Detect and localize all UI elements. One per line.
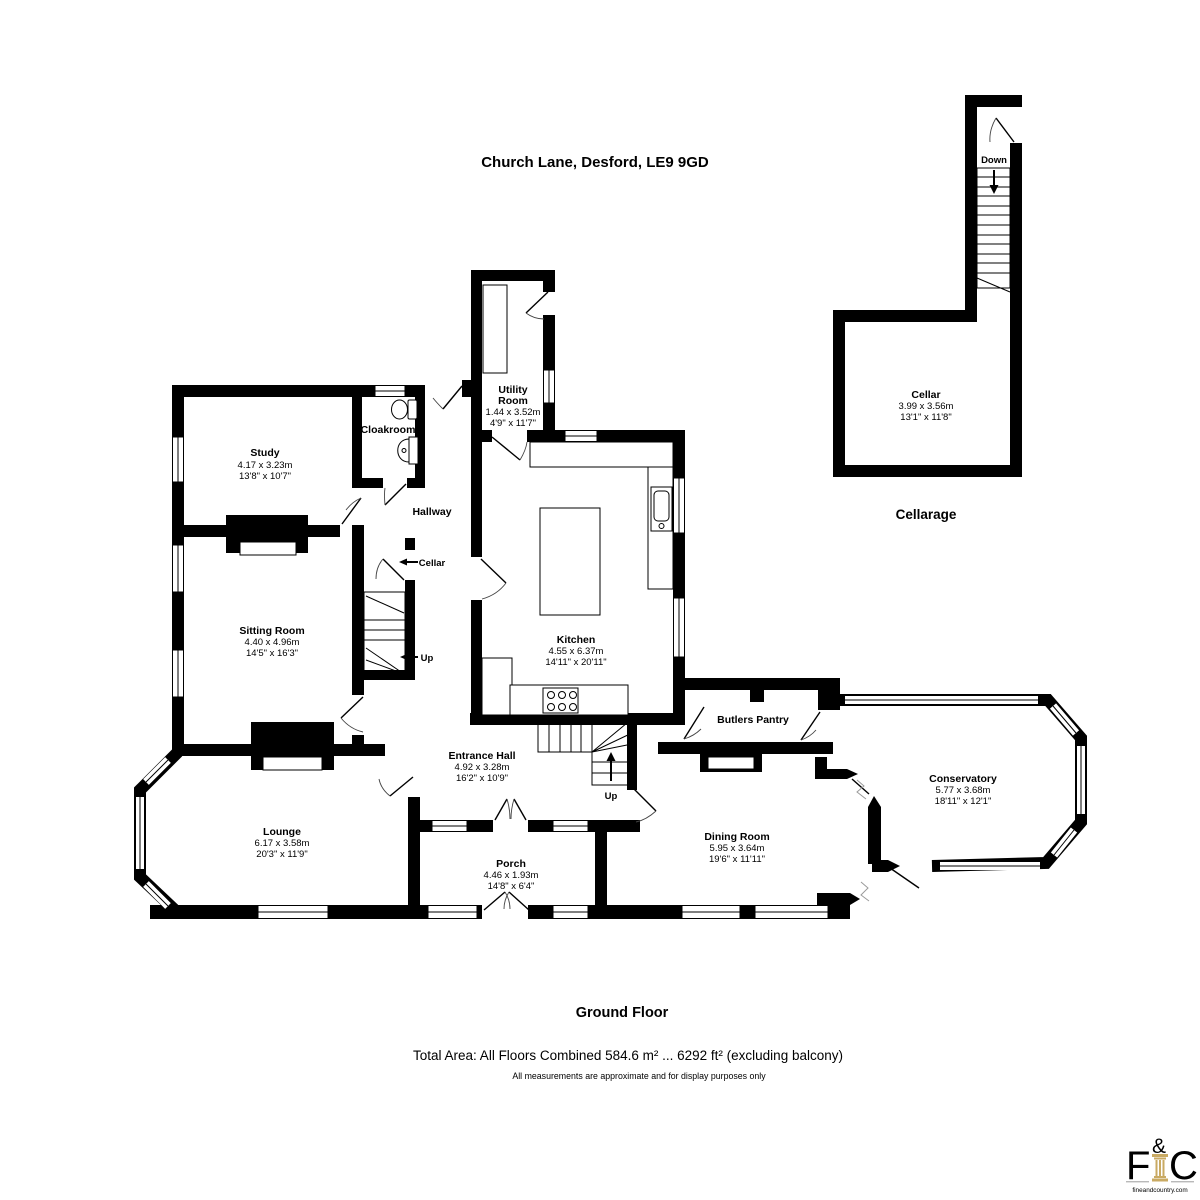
column-icon <box>1152 1154 1168 1182</box>
stairs-cellar <box>977 168 1010 292</box>
room-dim-metric: 4.46 x 1.93m <box>484 870 539 881</box>
door <box>433 386 462 409</box>
window <box>258 906 328 919</box>
left-arrow-icon <box>399 559 407 566</box>
room-label: Entrance Hall <box>448 750 515 762</box>
room-label: Lounge <box>263 826 301 838</box>
door <box>341 697 363 732</box>
logo-website: fineandcountry.com <box>1132 1187 1187 1194</box>
room-dim-imperial: 13'8" x 10'7" <box>239 471 291 482</box>
door <box>801 712 820 740</box>
window <box>674 478 685 533</box>
left-arrow-icon <box>400 654 408 661</box>
floor-label: Ground Floor <box>576 1005 669 1021</box>
sink-icon <box>651 487 672 531</box>
floorplan-page: Church Lane, Desford, LE9 9GD <box>0 0 1200 1200</box>
room-hallway: Hallway <box>412 506 451 518</box>
room-dim-imperial: 14'8" x 6'4" <box>488 881 535 892</box>
room-label: Cellar <box>911 389 940 401</box>
up-arrow-icon <box>607 752 616 761</box>
cellar-door-annotation: Cellar <box>399 558 446 569</box>
cellar-door-label: Cellar <box>419 558 446 569</box>
door <box>890 868 919 888</box>
room-dim-metric: 4.92 x 3.28m <box>455 762 510 773</box>
room-dim-metric: 4.55 x 6.37m <box>549 646 604 657</box>
room-conservatory: Conservatory 5.77 x 3.68m 18'11" x 12'1" <box>929 773 997 807</box>
room-label: Kitchen <box>557 634 596 646</box>
door <box>990 118 1014 142</box>
room-dim-imperial: 18'11" x 12'1" <box>935 796 992 807</box>
room-kitchen: Kitchen 4.55 x 6.37m 14'11" x 20'11" <box>545 634 606 668</box>
room-lounge: Lounge 6.17 x 3.58m 20'3" x 11'9" <box>255 826 310 860</box>
room-study: Study 4.17 x 3.23m 13'8" x 10'7" <box>238 447 293 482</box>
fireplace-sitting-room <box>240 542 296 555</box>
room-dim-metric: 4.17 x 3.23m <box>238 460 293 471</box>
room-butlers-pantry: Butlers Pantry <box>717 714 789 726</box>
double-door <box>495 799 526 820</box>
window <box>674 598 685 657</box>
room-dim-metric: 4.40 x 4.96m <box>245 637 300 648</box>
window <box>173 650 184 697</box>
room-dim-metric: 6.17 x 3.58m <box>255 838 310 849</box>
window <box>432 821 467 832</box>
room-dim-metric: 5.77 x 3.68m <box>936 785 991 796</box>
stairs-back <box>364 592 405 676</box>
lounge-bay-window <box>140 752 178 913</box>
stairs-main <box>538 722 632 785</box>
hob-icon <box>543 688 578 713</box>
kitchen-counter-top <box>530 442 673 467</box>
utility-counter <box>483 285 507 373</box>
room-label: Porch <box>496 858 526 870</box>
double-door <box>484 892 529 910</box>
walls <box>150 95 1022 919</box>
door <box>852 779 869 794</box>
room-dim-metric: 1.44 x 3.52m <box>486 407 541 418</box>
up-label-main-stairs: Up <box>605 791 618 802</box>
window <box>428 906 477 919</box>
window <box>755 906 828 919</box>
room-label: Study <box>250 447 279 459</box>
room-dim-imperial: 4'9" x 11'7" <box>490 418 536 429</box>
room-utility: Utility Room 1.44 x 3.52m 4'9" x 11'7" <box>486 384 541 429</box>
window <box>553 906 588 919</box>
room-dim-metric: 3.99 x 3.56m <box>899 401 954 412</box>
kitchen-counter-left <box>482 658 512 715</box>
window <box>173 437 184 482</box>
down-label: Down <box>981 155 1007 166</box>
room-dim-metric: 5.95 x 3.64m <box>710 843 765 854</box>
fine-and-country-logo: F C & fineandcountry.com <box>1126 1135 1198 1194</box>
down-arrow-icon <box>990 185 999 194</box>
room-dim-imperial: 19'6" x 11'11" <box>709 854 765 865</box>
total-area-text: Total Area: All Floors Combined 584.6 m²… <box>413 1048 843 1063</box>
window <box>682 906 740 919</box>
room-entrance-hall: Entrance Hall 4.92 x 3.28m 16'2" x 10'9" <box>448 750 515 784</box>
room-dim-imperial: 14'5" x 16'3" <box>246 648 298 659</box>
window <box>375 386 405 397</box>
door <box>481 559 506 599</box>
door <box>492 437 527 460</box>
up-label: Up <box>421 653 434 664</box>
window <box>544 370 555 403</box>
door <box>342 498 361 524</box>
disclaimer-text: All measurements are approximate and for… <box>512 1071 766 1081</box>
room-cellar: Cellar 3.99 x 3.56m 13'1" x 11'8" <box>899 389 954 423</box>
room-cloakroom: Cloakroom <box>361 424 416 436</box>
door <box>526 292 548 319</box>
fireplace-dining-room <box>708 757 754 769</box>
window <box>173 545 184 592</box>
room-porch: Porch 4.46 x 1.93m 14'8" x 6'4" <box>484 858 539 892</box>
room-sitting: Sitting Room 4.40 x 4.96m 14'5" x 16'3" <box>239 625 304 659</box>
room-label: Dining Room <box>704 831 769 843</box>
door <box>684 707 704 739</box>
fireplace-lounge <box>263 757 322 770</box>
room-dim-imperial: 13'1" x 11'8" <box>900 412 951 423</box>
room-dim-imperial: 16'2" x 10'9" <box>456 773 508 784</box>
cellarage-section-label: Cellarage <box>896 507 957 522</box>
room-dim-imperial: 14'11" x 20'11" <box>545 657 606 668</box>
room-label: Conservatory <box>929 773 997 785</box>
toilet-icon <box>392 400 418 419</box>
door <box>385 484 407 505</box>
window <box>565 431 597 442</box>
door <box>634 789 656 822</box>
room-label: Sitting Room <box>239 625 304 637</box>
basin-icon <box>398 437 418 464</box>
room-dim-imperial: 20'3" x 11'9" <box>256 849 307 860</box>
door <box>379 777 413 796</box>
room-label: Room <box>498 395 528 407</box>
page-title: Church Lane, Desford, LE9 9GD <box>481 154 709 171</box>
window <box>553 821 588 832</box>
room-dining: Dining Room 5.95 x 3.64m 19'6" x 11'11" <box>704 831 769 865</box>
floor-plan-svg: Church Lane, Desford, LE9 9GD <box>0 0 1200 1200</box>
kitchen-island <box>540 508 600 615</box>
